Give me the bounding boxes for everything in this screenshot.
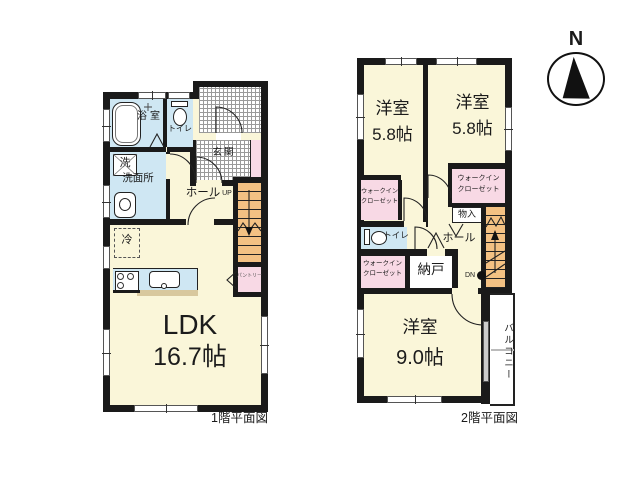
window <box>505 107 512 151</box>
window <box>357 309 364 358</box>
window <box>357 94 364 140</box>
fridge-label: 冷 <box>114 235 140 247</box>
wall-segment <box>166 152 170 154</box>
door-opening <box>427 249 445 256</box>
toilet-1f-label: トイレ <box>166 125 194 133</box>
window <box>103 109 110 142</box>
floor1-caption: 1階平面図 <box>150 412 268 425</box>
wall-segment <box>238 292 261 297</box>
floorplan-canvas: 玄関 浴室 トイレ 洗 洗面所 ホール UP パントリー <box>0 0 637 480</box>
room-pantry <box>238 267 261 292</box>
burner-icon <box>127 273 134 280</box>
window <box>134 405 198 412</box>
wic-left-label-2: クローゼット <box>359 199 400 206</box>
bathtub-inner-icon <box>115 105 138 143</box>
counter-edge <box>137 290 198 296</box>
hall-2f-label: ホール <box>438 233 480 245</box>
ldk-label: LDK <box>118 310 262 339</box>
wall-segment <box>361 288 452 294</box>
wall-segment <box>452 256 458 288</box>
bedroom-a-label: 洋室 <box>364 100 421 118</box>
window <box>168 92 190 99</box>
window <box>436 58 477 65</box>
toilet-tank-icon <box>171 101 188 107</box>
window <box>103 246 110 269</box>
wic-bottom-label-2: クローゼット <box>358 271 407 278</box>
dn-marker-dot <box>477 271 486 280</box>
burner-icon <box>117 273 124 280</box>
wic-right-label-2: クローゼット <box>452 186 505 193</box>
faucet-icon <box>161 283 167 289</box>
hall-1f-label: ホール <box>181 187 225 199</box>
burner-icon <box>117 282 124 289</box>
balcony-label: バルコニー <box>494 304 512 399</box>
pantry-label: パントリー <box>236 274 263 279</box>
wall-segment <box>361 249 407 256</box>
washroom-label: 洗面所 <box>110 173 166 184</box>
dn-label: DN <box>463 272 477 279</box>
wic-bottom-label-1: ウォークイン <box>358 261 407 268</box>
porch-area <box>199 87 261 133</box>
bedroom-b-size: 5.8帖 <box>442 120 503 138</box>
up-label: UP <box>220 190 234 197</box>
window <box>261 316 268 374</box>
bathroom-label: 浴室 <box>134 112 166 123</box>
bedroom-c-size: 9.0帖 <box>372 348 468 369</box>
shoe-cabinet <box>250 140 261 177</box>
bedroom-a-size: 5.8帖 <box>362 126 423 144</box>
wic-right-label-1: ウォークイン <box>452 175 505 182</box>
bedroom-c-label: 洋室 <box>375 318 465 336</box>
storeroom-label: 納戸 <box>410 263 452 277</box>
window <box>138 92 166 99</box>
washbasin-bowl-icon <box>119 198 131 211</box>
window <box>103 185 110 218</box>
wall-segment <box>426 221 428 227</box>
ldk-size-label: 16.7帖 <box>118 344 262 370</box>
wall-segment <box>110 219 186 225</box>
toilet-2f-label: トイレ <box>383 231 409 240</box>
floorplan-annotations <box>0 0 637 480</box>
wall-segment <box>113 290 140 293</box>
wall-segment <box>167 147 193 152</box>
window <box>385 58 417 65</box>
washer-label: 洗 <box>113 158 137 170</box>
entrance-label: 玄関 <box>206 148 242 158</box>
floor2-caption: 2階平面図 <box>400 412 518 425</box>
window <box>103 329 110 376</box>
door-opening <box>196 180 222 186</box>
toilet-tank-icon <box>364 229 370 245</box>
bedroom-b-label: 洋室 <box>444 94 501 112</box>
entrance-door-opening <box>216 133 241 140</box>
wall-segment <box>423 65 428 222</box>
window <box>387 396 442 403</box>
closet-label: 物入 <box>452 210 482 219</box>
stairs-2f <box>486 207 505 290</box>
wall-segment <box>166 179 170 223</box>
wic-left-label-1: ウォークイン <box>359 189 400 196</box>
balcony-sliding-window <box>483 321 489 382</box>
north-label: N <box>549 29 603 50</box>
stairs-1f <box>238 183 261 262</box>
